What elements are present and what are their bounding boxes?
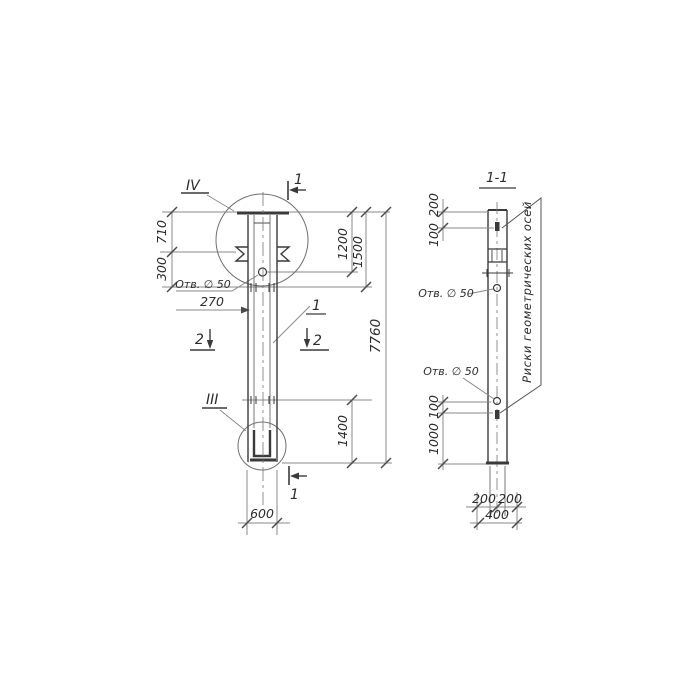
hole-callout-upper: Отв. ∅ 50: [418, 287, 474, 300]
axes-note: Риски геометрических осей: [520, 201, 534, 383]
bottom-cavity: [254, 430, 270, 456]
dim-400-label: 400: [485, 507, 509, 522]
dim-300-label: 300: [154, 257, 169, 281]
dim-1200-label: 1200: [335, 228, 350, 260]
dim-270-label: 270: [200, 294, 224, 309]
dim-200-right-label: 200: [498, 491, 522, 506]
dim-100-bottom-label: 100: [426, 395, 441, 419]
marker-iii-leader: [220, 410, 246, 431]
dim-1500-label: 1500: [350, 236, 365, 268]
detail-marker-iv: IV: [186, 178, 201, 194]
dim-1000-label: 1000: [426, 423, 441, 455]
dim-200-left-label: 200: [472, 491, 496, 506]
axis-mark-bottom: [495, 410, 500, 419]
dim-1400-label: 1400: [335, 415, 350, 447]
section-cut-1-top-label: 1: [294, 172, 303, 188]
hole-lower-leader: [463, 378, 494, 399]
hole-callout-left: Отв. ∅ 50: [175, 278, 231, 291]
hole-callout-lower: Отв. ∅ 50: [423, 365, 479, 378]
hole-50: [259, 268, 267, 276]
part-callout-label: 1: [312, 298, 321, 314]
section-cut-2-right-label: 2: [313, 333, 322, 349]
detail-marker-iii: III: [206, 392, 218, 408]
axis-mark-top: [495, 222, 500, 231]
flange-wing-left: [236, 247, 248, 261]
dim-200-top-label: 200: [426, 193, 441, 217]
flange-wing-right: [277, 247, 289, 261]
section-cut-1-bottom: [289, 466, 307, 485]
section-cut-2-left-label: 2: [195, 332, 204, 348]
detail-circle-bottom: [238, 422, 286, 470]
callout-leader: [273, 306, 310, 343]
column-elevation-view: 1 1 2 2 IV III 1 710 300 1200 1: [154, 172, 392, 535]
section-cut-1-bottom-label: 1: [290, 487, 299, 503]
detail-circle-top: [216, 194, 308, 286]
dim-710-label: 710: [154, 220, 169, 244]
drawing-canvas: 1 1 2 2 IV III 1 710 300 1200 1: [0, 0, 700, 700]
dim-7760-label: 7760: [368, 319, 384, 353]
section-1-1-title: 1-1: [486, 170, 508, 186]
section-1-1-view: 1-1: [418, 170, 541, 530]
marker-iv-leader: [207, 195, 234, 211]
dim-100-top-label: 100: [426, 223, 441, 247]
drawing-sheet: 1 1 2 2 IV III 1 710 300 1200 1: [0, 0, 700, 700]
dim-600-label: 600: [250, 506, 274, 521]
